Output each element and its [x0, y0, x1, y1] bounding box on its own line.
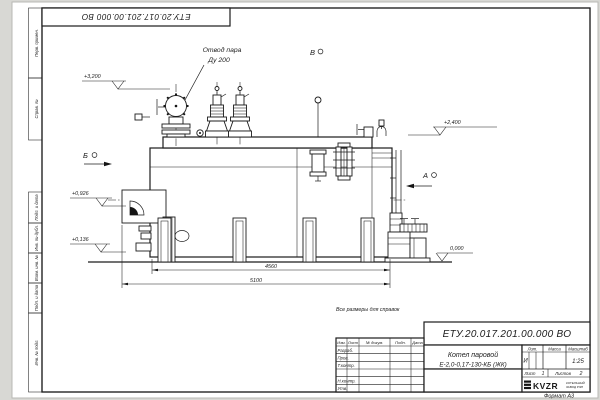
- row-label: Утв.: [338, 386, 348, 391]
- lit-header: Лит.: [527, 346, 538, 351]
- view-label: Б: [83, 151, 88, 160]
- margin-label: Подп. и дата: [34, 194, 39, 221]
- sheet-label: Лист: [523, 371, 535, 376]
- logo-mark-icon: [524, 384, 531, 386]
- document-type: Е-2,0-0,17-130-КБ (ЖК): [439, 362, 506, 369]
- logo-text: KVZR: [533, 381, 558, 391]
- lit-mass-scale-block: Лит. Масса Масштаб И 1:25 Лист 1 Листов …: [522, 345, 590, 392]
- elevation-value: +3,200: [84, 74, 101, 80]
- margin-label: Справ. №: [34, 99, 39, 118]
- signature-table: Изм. Лист № докум. Подп. Дата Разраб. Пр…: [336, 338, 424, 392]
- logo-mark-icon: [524, 381, 531, 383]
- support-leg: [158, 218, 171, 262]
- col-header: Подп.: [395, 340, 406, 345]
- lit-value: И: [523, 359, 528, 365]
- col-header: Лист: [347, 340, 359, 345]
- margin-label: Инв. № подл.: [34, 340, 39, 366]
- front-fitting: [141, 233, 151, 239]
- col-header: № докум.: [366, 340, 384, 345]
- elevation-value: +0,136: [72, 237, 89, 243]
- steam-outlet-text: Отвод пара: [203, 46, 242, 54]
- gauge-glass: [333, 143, 355, 180]
- mass-header: Масса: [548, 346, 561, 351]
- col-header: Дата: [411, 340, 423, 345]
- scale-value: 1:25: [572, 359, 584, 365]
- water-level-column: [310, 150, 326, 181]
- corner-designation-box: ЕТУ.20.017.201.00.000 ВО: [42, 8, 230, 26]
- sheets-label: Листов: [554, 371, 571, 376]
- row-label: Н.контр.: [338, 378, 356, 383]
- elevation-value: 0,000: [450, 246, 464, 252]
- reference-note: Все размеры для справок: [336, 307, 400, 313]
- title-designation: ЕТУ.20.017.201.00.000 ВО: [443, 329, 572, 340]
- margin-label: Перв. примен.: [34, 29, 39, 57]
- support-leg: [303, 218, 316, 262]
- document-name-cell: Котел паровой Е-2,0-0,17-130-КБ (ЖК): [424, 345, 522, 392]
- support-leg: [233, 218, 246, 262]
- logo-subtext: ЗАВОД РЭП: [566, 385, 583, 389]
- support-leg: [361, 218, 374, 262]
- format-label: Формат А3: [544, 394, 575, 400]
- front-fitting: [139, 226, 151, 231]
- dimension-value: 4560: [265, 264, 277, 270]
- sheet-number: 1: [542, 371, 545, 377]
- steam-outlet-text: Ду 200: [207, 57, 230, 64]
- drawing-sheet: Перв. примен. Справ. № Подп. и дата Инв.…: [0, 0, 600, 400]
- margin-label: Инв. № дубл.: [34, 225, 39, 251]
- col-header: Изм.: [337, 340, 346, 345]
- scale-header: Масштаб: [568, 346, 588, 351]
- row-label: Т.контр.: [338, 363, 355, 368]
- elevation-value: +0,926: [72, 191, 89, 197]
- dimension-value: 5100: [250, 278, 262, 284]
- margin-label: Взам. инв. №: [34, 255, 39, 281]
- corner-designation: ЕТУ.20.017.201.00.000 ВО: [81, 12, 190, 21]
- front-fitting: [136, 243, 151, 251]
- margin-label: Подп. и дата: [34, 284, 39, 311]
- row-label: Разраб.: [338, 348, 354, 353]
- sheets-total: 2: [579, 371, 583, 377]
- elevation-value: +2,400: [444, 120, 461, 126]
- row-label: Пров.: [338, 356, 349, 361]
- logo-mark-icon: [524, 387, 531, 389]
- document-name: Котел паровой: [448, 351, 498, 359]
- view-label: А: [422, 171, 428, 180]
- deck-vent: [197, 130, 203, 136]
- view-label: В: [310, 48, 315, 57]
